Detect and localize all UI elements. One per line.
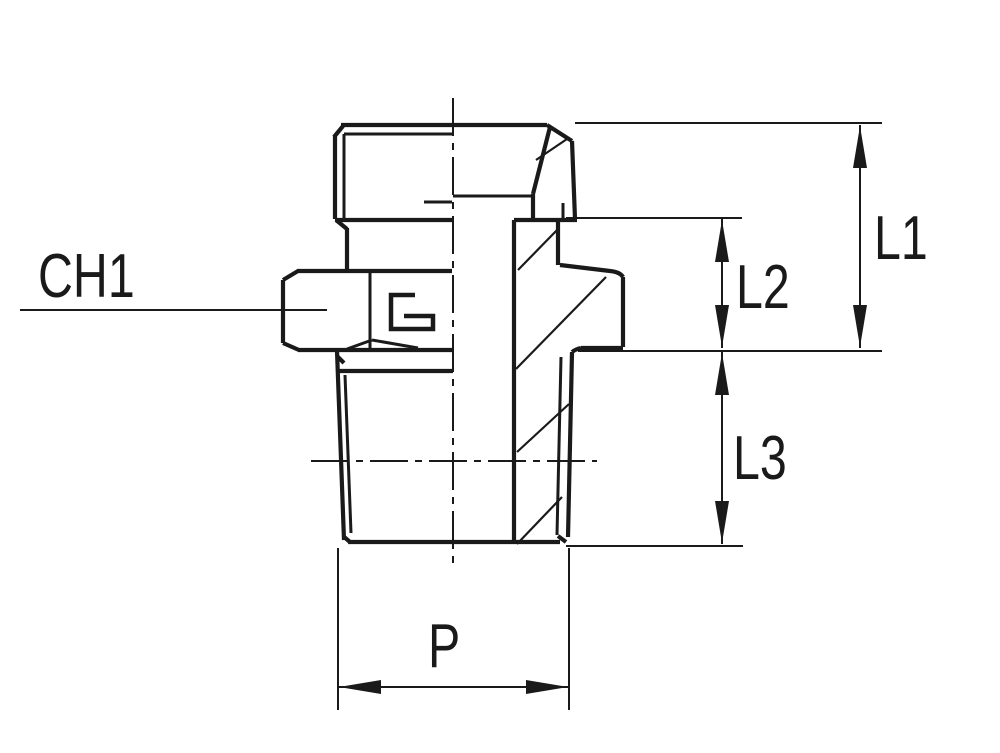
arrow-left-icon [339,680,381,694]
arrow-up-icon [853,126,867,168]
fitting-technical-drawing: CH1 L1 L2 L3 P [0,0,1000,753]
label-ch1: CH1 [38,241,135,310]
arrow-down-icon [715,501,729,543]
section-hatch-lines [516,139,606,544]
label-l2: L2 [736,252,790,321]
label-p: P [428,611,460,680]
dimension-line-l3 [715,352,729,544]
extension-lines [338,123,882,710]
arrow-right-icon [526,680,568,694]
label-l3: L3 [733,423,787,492]
dimension-line-l1 [853,125,867,348]
manufacturer-logo [391,295,433,329]
drawing-canvas: CH1 L1 L2 L3 P [0,0,1000,753]
arrow-up-icon [715,220,729,262]
arrow-up-icon [715,353,729,395]
label-l1: L1 [874,203,928,272]
dimension-line-p [338,680,569,694]
arrow-down-icon [715,305,729,347]
dimension-line-l2 [715,219,729,348]
arrow-down-icon [853,305,867,347]
